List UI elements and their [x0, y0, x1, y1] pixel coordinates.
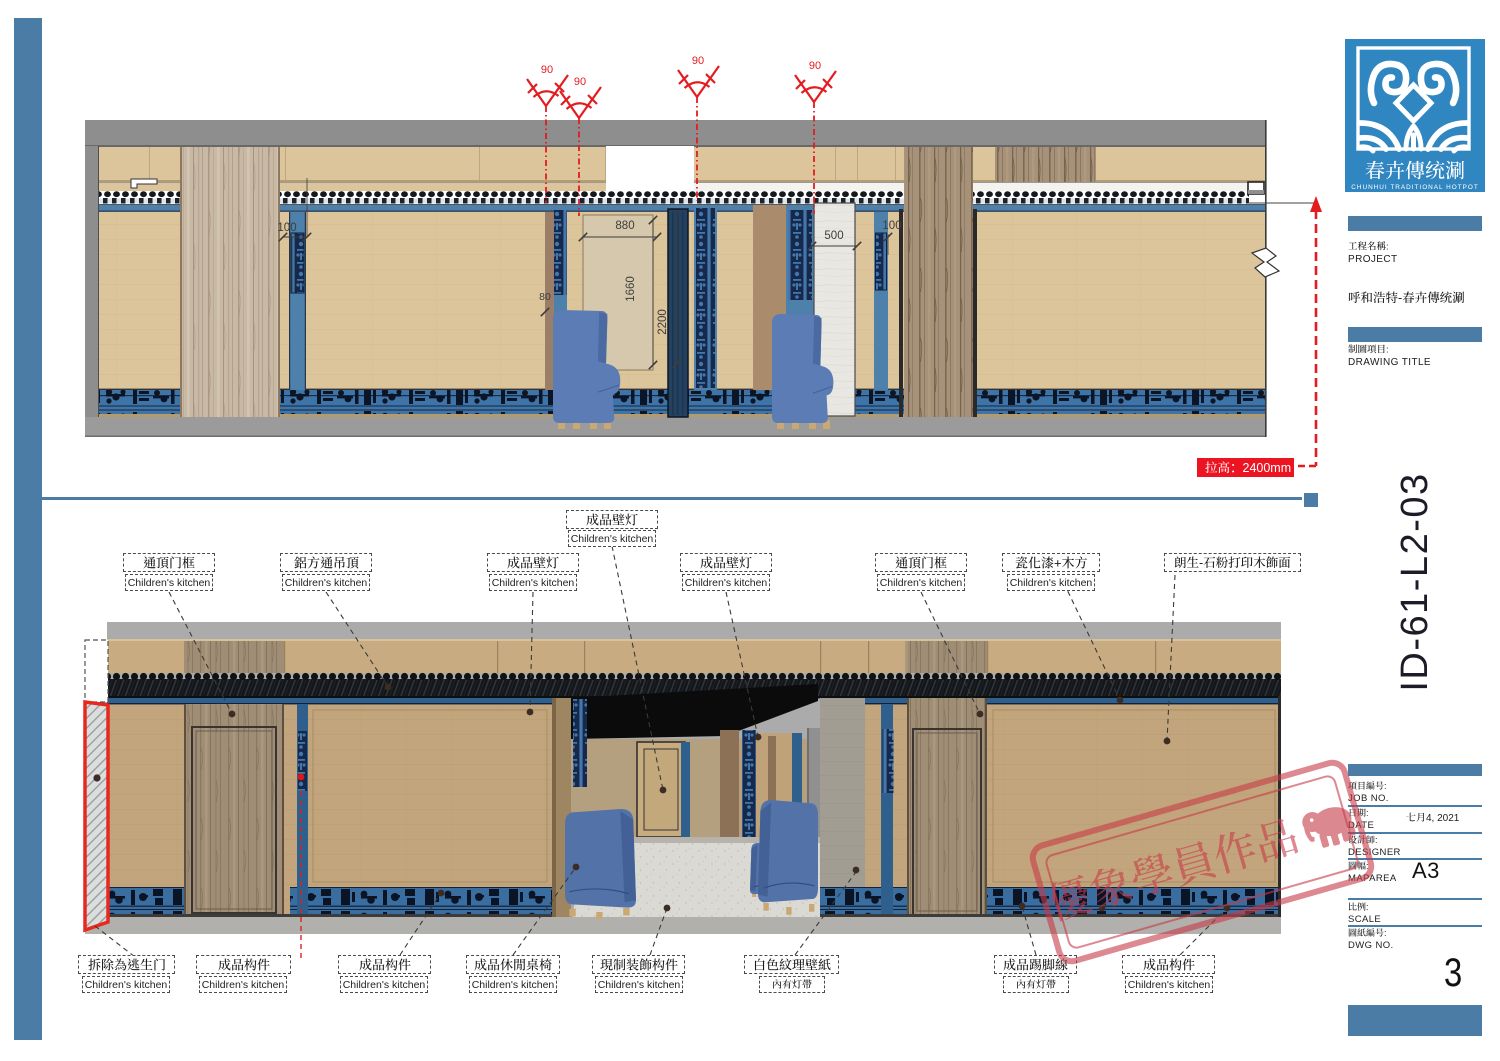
svg-text:90: 90: [541, 64, 553, 76]
svg-text:2200: 2200: [657, 309, 669, 335]
svg-text::: :: [1366, 808, 1369, 818]
svg-text::: :: [1375, 835, 1378, 845]
svg-text::: :: [1384, 781, 1387, 791]
svg-text:：2400mm: ：2400mm: [1230, 461, 1291, 475]
svg-text:90: 90: [692, 55, 704, 67]
svg-text:100: 100: [882, 220, 901, 232]
svg-text:90: 90: [574, 76, 586, 88]
svg-text:880: 880: [615, 220, 634, 232]
svg-text:1660: 1660: [625, 276, 637, 302]
svg-text:4, 2021: 4, 2021: [1426, 813, 1460, 824]
svg-text::: :: [1386, 344, 1389, 355]
svg-text:+: +: [1054, 555, 1062, 570]
svg-text:-: -: [1398, 291, 1402, 305]
svg-text::: :: [1366, 902, 1369, 912]
svg-text:CHUNHUI TRADITIONAL HOTPOT: CHUNHUI TRADITIONAL HOTPOT: [1351, 184, 1479, 191]
svg-text:500: 500: [824, 230, 843, 242]
svg-text::: :: [1386, 241, 1389, 252]
svg-text::: :: [1384, 928, 1387, 938]
svg-text:90: 90: [809, 60, 821, 72]
svg-text:-: -: [1199, 556, 1203, 570]
svg-text:100: 100: [277, 222, 296, 234]
svg-text:80: 80: [539, 291, 551, 303]
